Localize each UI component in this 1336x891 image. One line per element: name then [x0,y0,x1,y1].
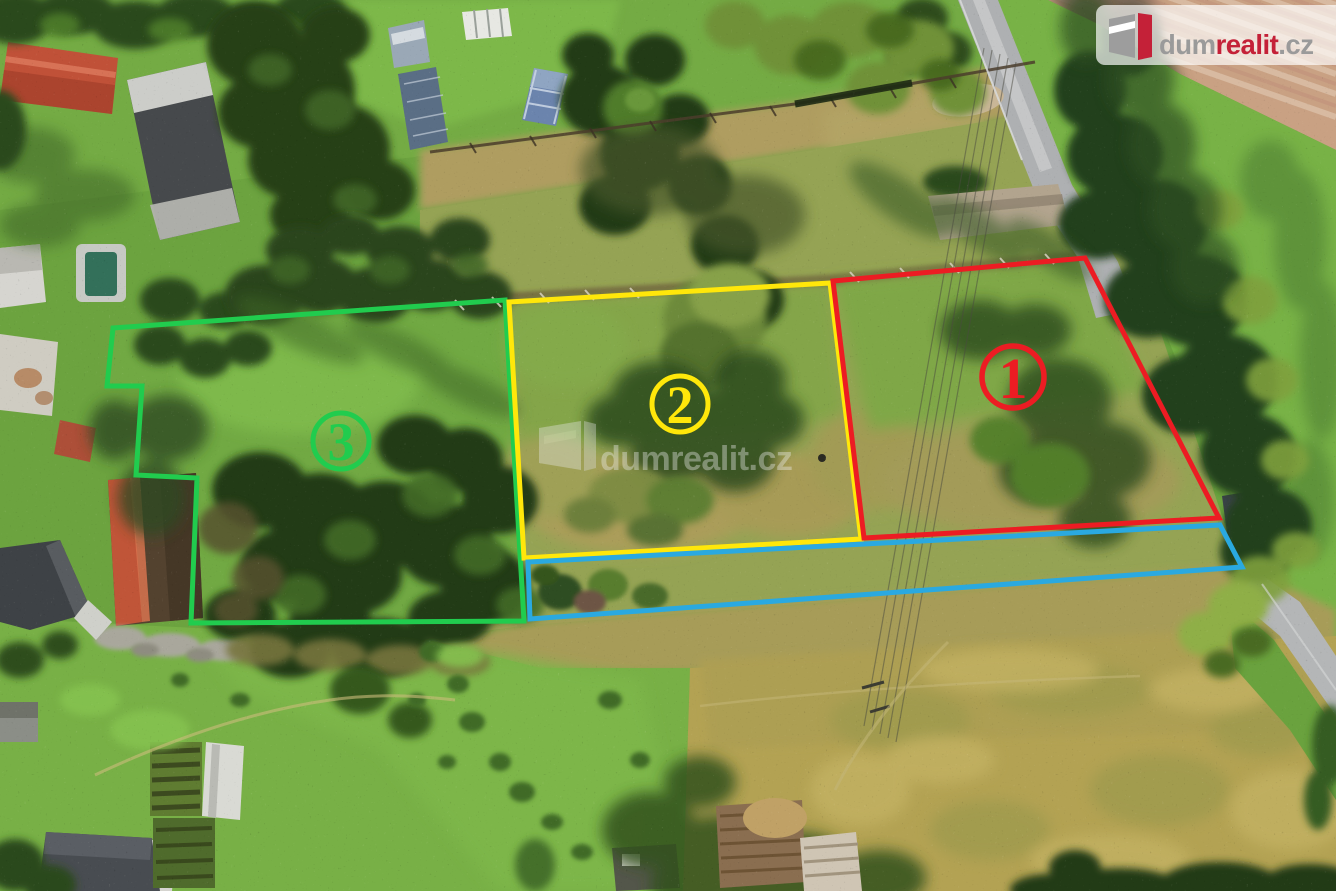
svg-text:2: 2 [667,375,694,435]
svg-text:dumrealit.cz: dumrealit.cz [1159,29,1313,60]
svg-text:1: 1 [999,346,1028,411]
svg-text:3: 3 [328,412,355,472]
svg-text:dumrealit.cz: dumrealit.cz [600,440,792,478]
